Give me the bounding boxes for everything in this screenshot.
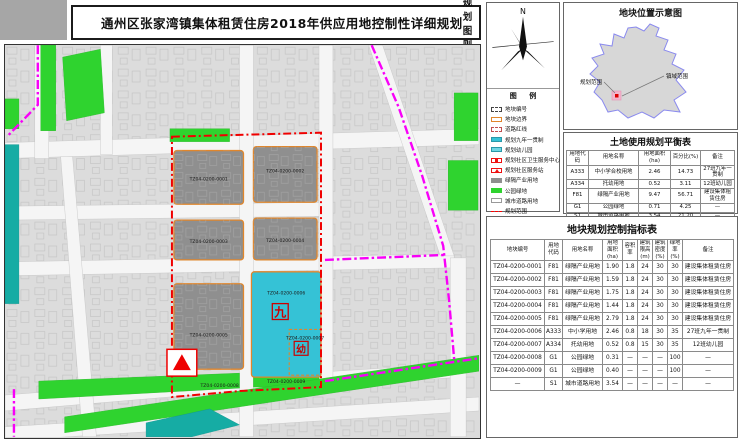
table-row: TZ04-0200-0006A333中小学用地2.460.818303527班九… [491,326,734,339]
table-cell: 24 [638,313,653,326]
legend-item-label: 规划社区卫生服务中心 [505,156,560,164]
table-cell: 绿隔产业用地 [589,189,639,204]
table-cell: G1 [545,365,563,378]
table-cell: 建设集体租赁住房 [683,274,734,287]
table-cell: 27班九年一贯制 [683,326,734,339]
table-cell: 1.75 [603,287,623,300]
table-cell: 0.40 [603,365,623,378]
table-cell: TZ04-0200-0005 [491,313,545,326]
column-header: 备注 [701,151,735,166]
column-header: 百分比(%) [671,151,701,166]
table-row: TZ04-0200-0007A334托幼用地0.520.815303512班幼儿… [491,339,734,352]
north-label: N [520,7,526,16]
parcel-label: TZ04-0200-0007 [285,335,324,341]
corner-block [0,0,67,40]
table-cell: 15 [638,339,653,352]
table-cell: 城市道路用地 [563,378,603,391]
legend-item-label: 道路红线 [505,125,527,133]
kindergarten-marker-label: 幼 [296,342,306,355]
table-cell: 56.71 [671,189,701,204]
parcel-label: TZ04-0200-0002 [265,168,304,174]
sheet-type-label: 规划图则 [463,0,473,51]
legend-item-label: 规划社区服务站 [505,166,544,174]
table-cell: 建设集体租赁住房 [683,261,734,274]
table-cell: 1.8 [623,287,638,300]
legend-item-label: 绿隔产业用地 [505,176,538,184]
location-map-box: 地块位置示意图 规划范围 镇域范围 [563,2,738,130]
legend-item: 规划九年一贯制 [487,135,559,145]
compass: N [487,3,559,89]
column-header: 用地代码 [567,151,589,166]
legend-item-label: 地块边界 [505,115,527,123]
table-cell: TZ04-0200-0006 [491,326,545,339]
table-cell: TZ04-0200-0002 [491,274,545,287]
table-cell: G1 [567,203,589,212]
table-cell: 24 [638,261,653,274]
scope-red-swatch-icon [491,211,502,212]
table-cell: — [683,378,734,391]
legend-title: 图 例 [487,89,559,103]
health-swatch-icon [491,158,502,163]
table-cell: — [653,365,668,378]
table-row: A334托幼用地0.523.1112班幼儿园 [567,180,735,189]
table-row: TZ04-0200-0009G1公园绿地0.40———100— [491,365,734,378]
table-row: TZ04-0200-0001F81绿隔产业用地1.901.8243030建设集体… [491,261,734,274]
table-cell: 绿隔产业用地 [563,261,603,274]
table-cell: 30 [668,287,683,300]
table-row: A333中小学合校用地2.4614.7327班九年一贯制 [567,165,735,180]
table-cell: 30 [653,326,668,339]
table-cell: 24 [638,274,653,287]
table-cell: A334 [545,339,563,352]
table-cell: 100 [668,352,683,365]
table-row: —S1城市道路用地3.54————— [491,378,734,391]
table-cell: 3.11 [671,180,701,189]
table-cell: 2.46 [639,165,671,180]
legend-item: 规划幼儿园 [487,145,559,155]
legend-item-label: 公园绿地 [505,187,527,195]
table-row: TZ04-0200-0008G1公园绿地0.31———100— [491,352,734,365]
legend-item: 地块边界 [487,114,559,124]
table-cell: TZ04-0200-0008 [491,352,545,365]
legend-item: 规划社区卫生服务中心 [487,155,559,165]
column-header: 容积 率 [623,240,638,261]
table-cell: 30 [668,313,683,326]
balance-table-title: 土地使用规划平衡表 [566,134,735,150]
north-legend-box: N 图 例 地块编号地块边界道路红线规划九年一贯制规划幼儿园规划社区卫生服务中心… [486,2,560,212]
legend-item: 道路红线 [487,124,559,134]
table-cell: 30 [668,300,683,313]
table-row: TZ04-0200-0004F81绿隔产业用地1.441.8243030建设集体… [491,300,734,313]
parcel-code-swatch-icon [491,107,502,112]
legend-list: 地块编号地块边界道路红线规划九年一贯制规划幼儿园规划社区卫生服务中心规划社区服务… [487,103,559,227]
table-cell: 100 [668,365,683,378]
legend-item: 城市道路用地 [487,196,559,206]
parcel-0006 [251,272,321,377]
table-cell: 2.79 [603,313,623,326]
table-cell: 24 [638,300,653,313]
table-cell: 中小学合校用地 [589,165,639,180]
north-arrow-icon [501,17,544,70]
indicator-table-title: 地块规划控制指标表 [490,219,734,239]
table-cell: F81 [545,300,563,313]
table-cell: F81 [545,261,563,274]
table-row: TZ04-0200-0002F81绿隔产业用地1.591.8243030建设集体… [491,274,734,287]
district-outline [590,24,686,118]
school-marker-label: 九 [273,306,286,320]
table-cell: A334 [567,180,589,189]
map-panel: 九 幼 TZ04-0200-0001 TZ04-0200-0002 TZ04-0… [4,44,481,439]
column-header: 建筑 密度 (%) [653,240,668,261]
planning-scope-label: 规划范围 [580,78,603,86]
parcel-label: TZ04-0200-0001 [189,176,228,182]
location-map-title: 地块位置示意图 [564,3,737,19]
table-cell: 30 [653,300,668,313]
table-cell: 0.52 [603,339,623,352]
title-bar: 通州区张家湾镇集体租赁住房2018年供应用地控制性详细规划 规划图则 [71,5,481,40]
school-swatch-icon [491,137,502,142]
table-row: F81绿隔产业用地9.4756.71建设集体租赁住房 [567,189,735,204]
parcel-label: TZ04-0200-0009 [266,379,305,385]
table-cell: 3.54 [603,378,623,391]
table-cell: F81 [545,313,563,326]
column-header: 用地 代码 [545,240,563,261]
table-cell: 0.8 [623,326,638,339]
parcel-label: TZ04-0200-0006 [266,291,305,297]
table-cell: — [623,378,638,391]
table-cell: TZ04-0200-0007 [491,339,545,352]
table-cell: 12班幼儿园 [683,339,734,352]
parcel-boundary-swatch-icon [491,117,502,122]
table-cell: 30 [668,274,683,287]
parcel-label: TZ04-0200-0003 [189,239,228,245]
legend-item: 地块编号 [487,104,559,114]
table-cell: 公园绿地 [563,365,603,378]
legend-item-label: 规划幼儿园 [505,146,533,154]
table-cell: 1.8 [623,261,638,274]
column-header: 备注 [683,240,734,261]
table-cell: G1 [545,352,563,365]
table-cell: 18 [638,326,653,339]
table-cell: 30 [653,287,668,300]
table-cell: 绿隔产业用地 [563,313,603,326]
table-cell: 中小学用地 [563,326,603,339]
table-cell: 绿隔产业用地 [563,274,603,287]
table-cell: 公园绿地 [589,203,639,212]
table-row: G1公园绿地0.714.25— [567,203,735,212]
table-cell: 0.8 [623,339,638,352]
location-map: 规划范围 镇域范围 [564,19,737,129]
table-cell: 35 [668,339,683,352]
legend-item: 规划社区服务站 [487,165,559,175]
column-header: 用地面积(ha) [639,151,671,166]
table-cell: — [491,378,545,391]
parcel-label: TZ04-0200-0004 [265,238,304,244]
table-cell: — [683,365,734,378]
table-cell: TZ04-0200-0001 [491,261,545,274]
column-header: 绿地 率 (%) [668,240,683,261]
table-cell: 绿隔产业用地 [563,300,603,313]
legend-item: 绿隔产业用地 [487,175,559,185]
table-cell: 24 [638,287,653,300]
table-cell: — [653,352,668,365]
table-row: TZ04-0200-0005F81绿隔产业用地2.791.8243030建设集体… [491,313,734,326]
table-cell: 1.44 [603,300,623,313]
indicator-table-box: 地块规划控制指标表 地块编号用地 代码用地名称用地 面积 (ha)容积 率建筑 … [486,216,738,438]
kindergarten-swatch-icon [491,147,502,152]
parcel-label: TZ04-0200-0008 [200,383,239,389]
table-cell: 建设集体租赁住房 [683,300,734,313]
table-header-row: 地块编号用地 代码用地名称用地 面积 (ha)容积 率建筑 限高 (m)建筑 密… [491,240,734,261]
table-cell: — [668,378,683,391]
table-header-row: 用地代码用地名称用地面积(ha)百分比(%)备注 [567,151,735,166]
table-cell: 托幼用地 [563,339,603,352]
table-cell: 1.8 [623,300,638,313]
page-title: 通州区张家湾镇集体租赁住房2018年供应用地控制性详细规划 [101,13,463,32]
town-scope-label: 镇域范围 [666,72,689,80]
table-cell: — [683,352,734,365]
table-cell: TZ04-0200-0009 [491,365,545,378]
table-cell: — [638,378,653,391]
scope-dot-icon [615,94,619,98]
table-cell: S1 [545,378,563,391]
balance-table-box: 土地使用规划平衡表 用地代码用地名称用地面积(ha)百分比(%)备注 A333中… [563,132,738,214]
table-cell: — [653,378,668,391]
table-cell: TZ04-0200-0004 [491,300,545,313]
industry-swatch-icon [491,178,502,183]
table-cell: 27班九年一贯制 [701,165,735,180]
table-row: TZ04-0200-0003F81绿隔产业用地1.751.8243030建设集体… [491,287,734,300]
table-cell: — [701,203,735,212]
legend-item: 公园绿地 [487,186,559,196]
table-cell: 30 [653,313,668,326]
table-cell: 9.47 [639,189,671,204]
table-cell: — [623,352,638,365]
legend-item-label: 地块编号 [505,105,527,113]
zoning-map: 九 幼 TZ04-0200-0001 TZ04-0200-0002 TZ04-0… [5,45,479,437]
table-cell: 0.71 [639,203,671,212]
column-header: 用地 面积 (ha) [603,240,623,261]
table-cell: 30 [653,339,668,352]
table-cell: — [623,365,638,378]
legend-item-label: 城市道路用地 [505,197,538,205]
table-cell: 1.90 [603,261,623,274]
parcel-label: TZ04-0200-0005 [189,332,228,338]
park-swatch-icon [491,188,502,193]
table-cell: 0.31 [603,352,623,365]
road-redline-swatch-icon [491,127,502,132]
table-cell: — [638,352,653,365]
table-cell: 14.73 [671,165,701,180]
column-header: 建筑 限高 (m) [638,240,653,261]
service-swatch-icon [491,168,502,173]
table-cell: 建设集体租赁住房 [683,287,734,300]
table-cell: 30 [653,261,668,274]
plan-sheet: 通州区张家湾镇集体租赁住房2018年供应用地控制性详细规划 规划图则 [0,0,740,443]
column-header: 地块编号 [491,240,545,261]
legend-item-label: 规划范围 [505,207,527,215]
indicator-table: 地块编号用地 代码用地名称用地 面积 (ha)容积 率建筑 限高 (m)建筑 密… [490,239,734,391]
table-cell: TZ04-0200-0003 [491,287,545,300]
table-cell: 1.8 [623,274,638,287]
table-cell: 2.46 [603,326,623,339]
legend-item: 规划范围 [487,206,559,216]
table-cell: A333 [545,326,563,339]
table-cell: 30 [668,261,683,274]
table-cell: 30 [653,274,668,287]
table-cell: F81 [567,189,589,204]
table-cell: — [638,365,653,378]
table-cell: 托幼用地 [589,180,639,189]
table-cell: 4.25 [671,203,701,212]
table-cell: 0.52 [639,180,671,189]
legend-item-label: 规划九年一贯制 [505,136,544,144]
table-cell: 1.8 [623,313,638,326]
column-header: 用地名称 [563,240,603,261]
road-swatch-icon [491,198,502,203]
table-cell: 1.59 [603,274,623,287]
table-cell: 35 [668,326,683,339]
table-cell: 绿隔产业用地 [563,287,603,300]
table-cell: F81 [545,274,563,287]
table-cell: 建设集体租赁住房 [701,189,735,204]
column-header: 用地名称 [589,151,639,166]
table-cell: 12班幼儿园 [701,180,735,189]
table-cell: F81 [545,287,563,300]
table-cell: A333 [567,165,589,180]
table-cell: 公园绿地 [563,352,603,365]
table-cell: 建设集体租赁住房 [683,313,734,326]
